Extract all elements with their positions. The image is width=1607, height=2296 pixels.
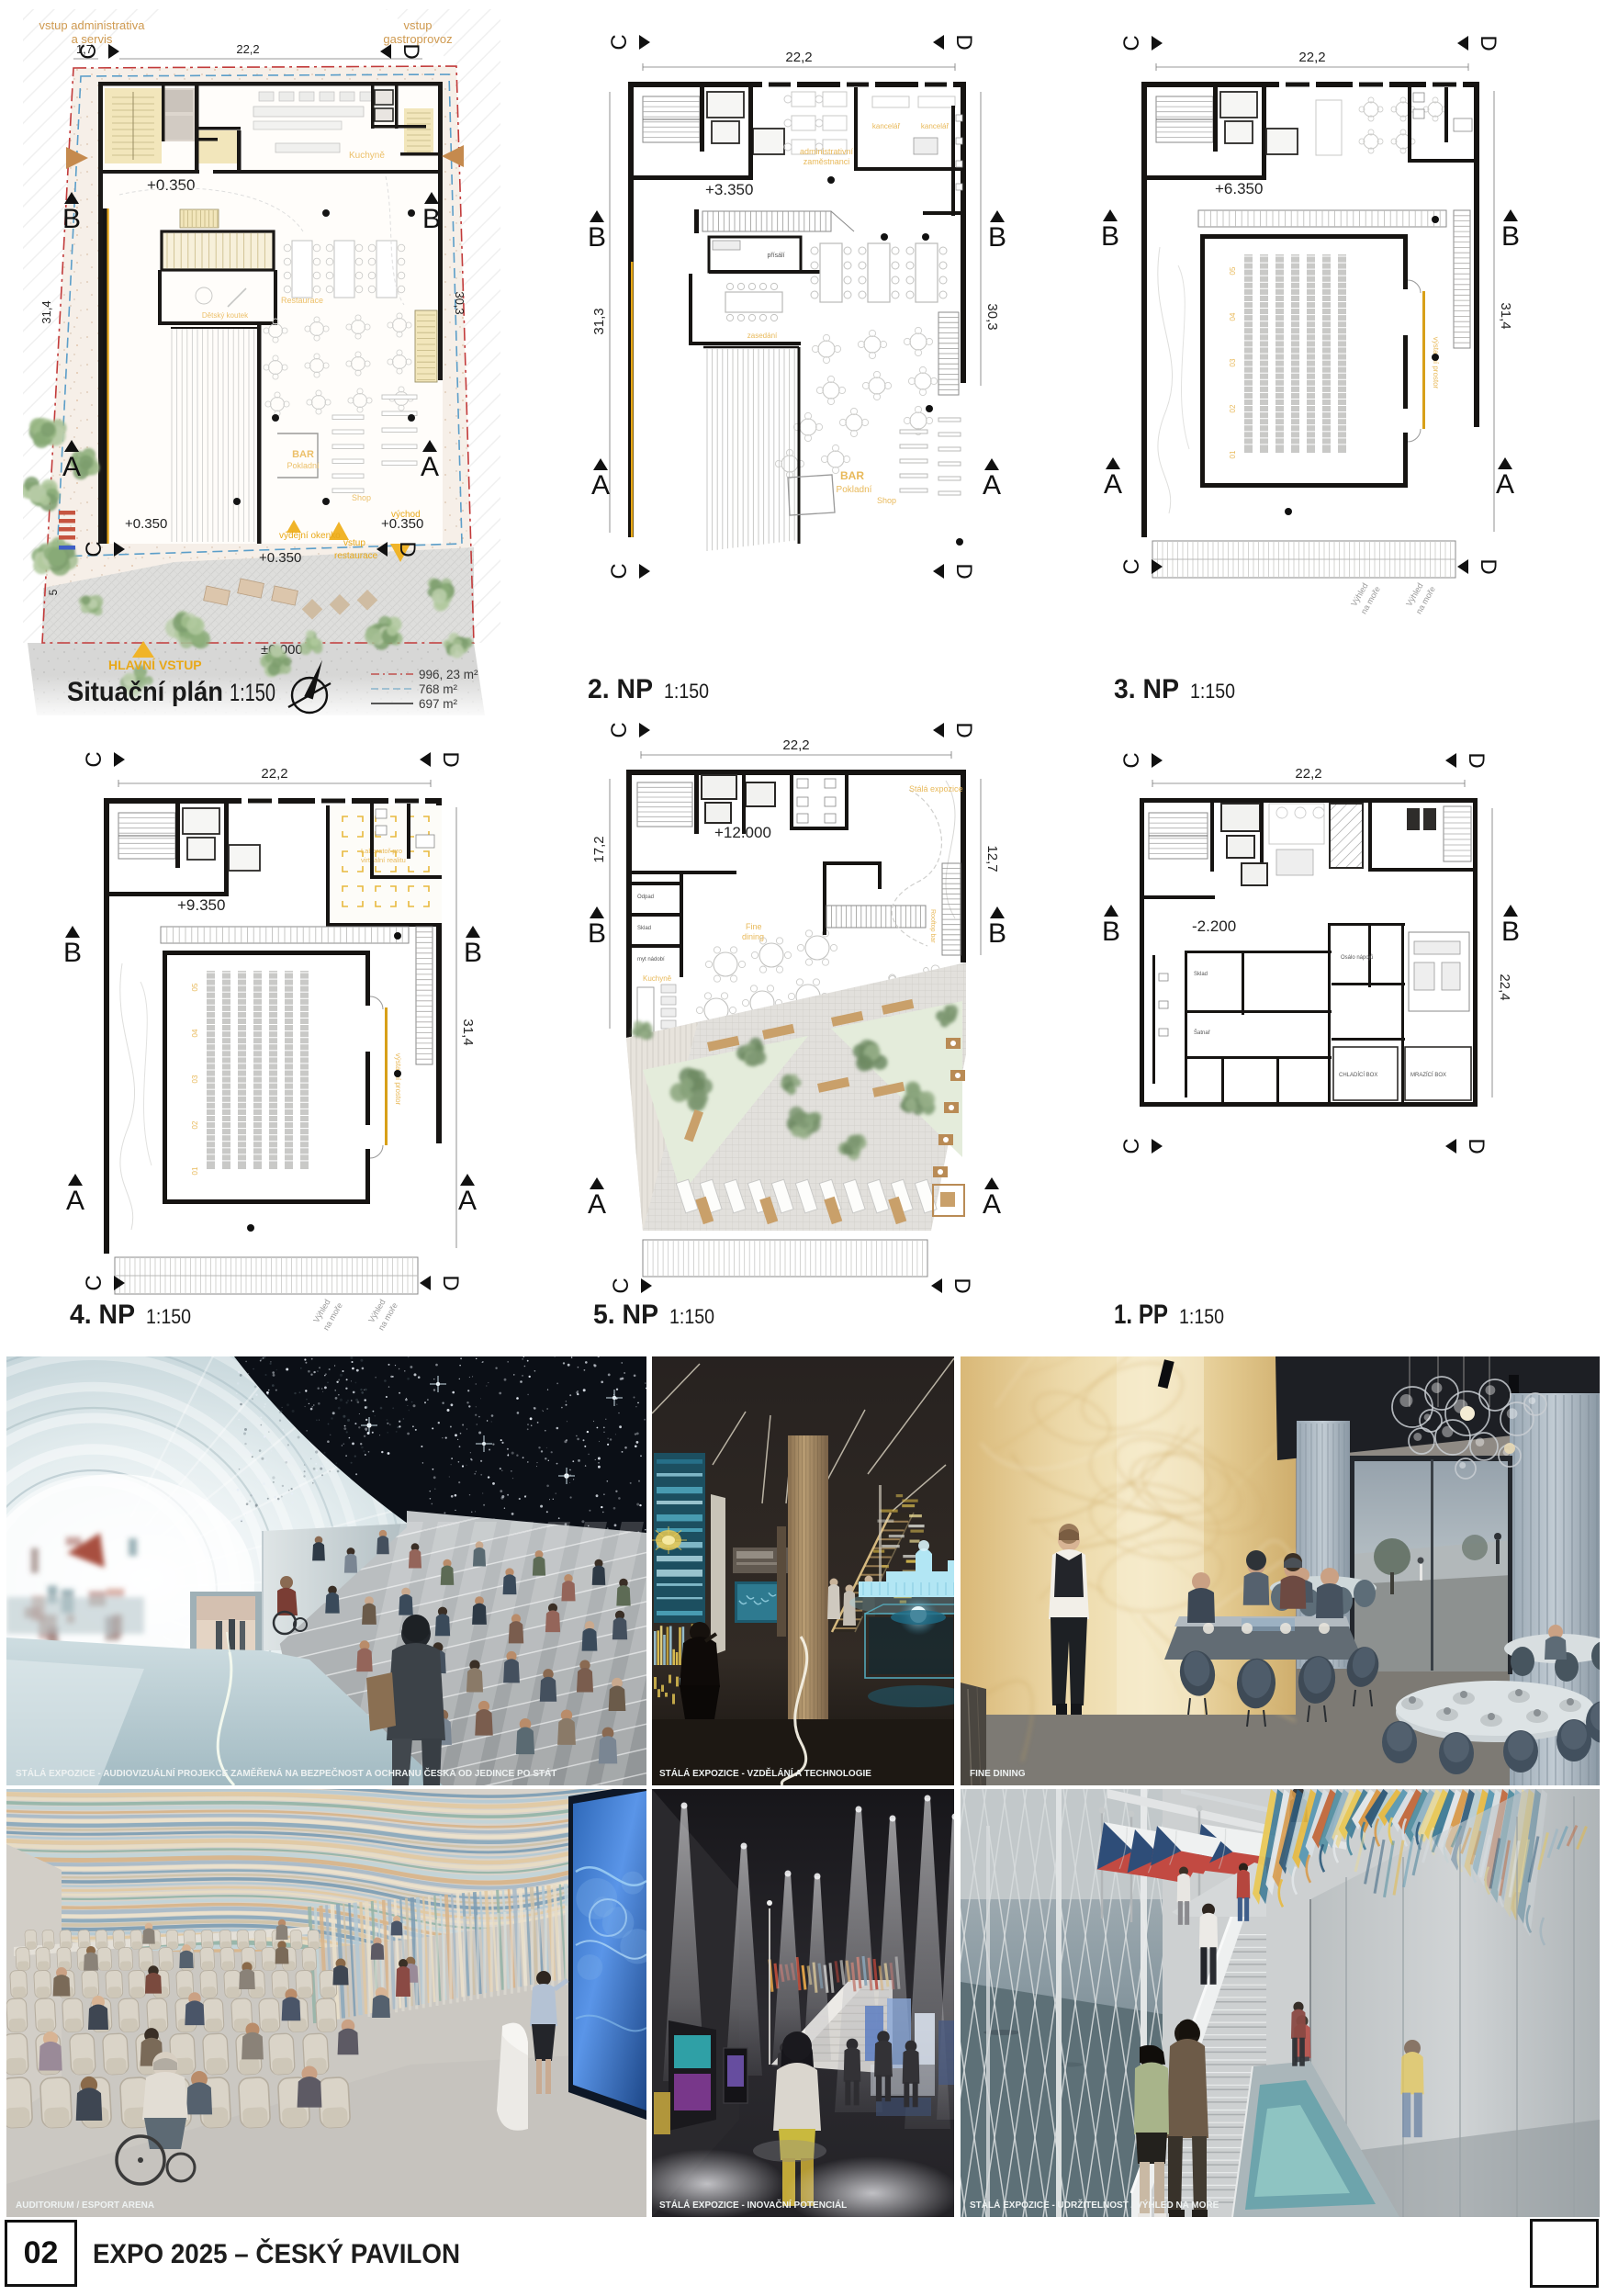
svg-text:C: C xyxy=(82,751,107,767)
svg-text:Dětský koutek: Dětský koutek xyxy=(202,311,249,320)
svg-text:+0.350: +0.350 xyxy=(259,550,301,566)
svg-text:5. NP: 5. NP xyxy=(593,1300,658,1330)
svg-text:B: B xyxy=(1501,221,1520,252)
svg-text:Stálá expozice: Stálá expozice xyxy=(909,784,963,793)
svg-text:B: B xyxy=(1101,221,1119,252)
svg-text:+6.350: +6.350 xyxy=(1215,180,1263,197)
svg-text:CHLADÍCÍ BOX: CHLADÍCÍ BOX xyxy=(1339,1072,1377,1078)
svg-text:+0.350: +0.350 xyxy=(125,516,167,532)
svg-text:B: B xyxy=(588,918,606,949)
svg-text:A: A xyxy=(588,1189,606,1220)
svg-text:dining: dining xyxy=(742,932,764,941)
svg-text:Sklad: Sklad xyxy=(637,926,651,931)
svg-text:B: B xyxy=(988,222,1006,253)
svg-text:2. NP: 2. NP xyxy=(588,674,653,704)
svg-text:B: B xyxy=(588,222,606,253)
svg-text:Laboratoř pro: Laboratoř pro xyxy=(361,847,402,855)
svg-text:myt nádobí: myt nádobí xyxy=(637,957,665,962)
svg-text:východ: východ xyxy=(391,510,421,520)
svg-text:kancelář: kancelář xyxy=(921,122,950,130)
svg-text:Sklad: Sklad xyxy=(1194,972,1208,977)
svg-text:1:150: 1:150 xyxy=(664,680,709,703)
svg-text:12,7: 12,7 xyxy=(984,845,1000,872)
svg-text:22,2: 22,2 xyxy=(1298,50,1325,65)
svg-text:+9.350: +9.350 xyxy=(177,896,225,914)
svg-text:-2.200: -2.200 xyxy=(1192,917,1236,935)
svg-text:A: A xyxy=(1104,469,1122,500)
svg-text:zasedání: zasedání xyxy=(747,332,778,340)
svg-text:996, 23 m²: 996, 23 m² xyxy=(419,668,478,681)
svg-text:zaměstnanci: zaměstnanci xyxy=(803,157,850,166)
svg-text:01: 01 xyxy=(191,1166,199,1175)
svg-text:D: D xyxy=(1476,558,1500,574)
svg-text:D: D xyxy=(395,541,420,557)
svg-text:22,2: 22,2 xyxy=(785,50,812,65)
svg-text:Šatnař: Šatnař xyxy=(1194,1030,1211,1036)
svg-text:04: 04 xyxy=(1229,312,1237,321)
svg-text:BAR: BAR xyxy=(840,469,864,482)
svg-text:31,4: 31,4 xyxy=(1498,302,1513,329)
svg-text:1:150: 1:150 xyxy=(1190,680,1235,703)
svg-text:30,3: 30,3 xyxy=(453,291,466,314)
svg-text:1. PP: 1. PP xyxy=(1114,1300,1168,1330)
svg-text:31,4: 31,4 xyxy=(460,1019,476,1045)
svg-text:FINE DINING: FINE DINING xyxy=(970,1769,1026,1779)
svg-text:STÁLÁ EXPOZICE - VZDĚLÁNÍ A T: STÁLÁ EXPOZICE - VZDĚLÁNÍ A TECHNOLOGIE xyxy=(659,1767,871,1779)
svg-text:01: 01 xyxy=(1229,450,1237,458)
svg-text:Osálo nápojů: Osálo nápojů xyxy=(1341,954,1373,961)
svg-text:05: 05 xyxy=(1229,266,1237,275)
svg-text:STÁLÁ EXPOZICE - AUDIOVIZUÁLN: STÁLÁ EXPOZICE - AUDIOVIZUÁLNÍ PROJEKCE … xyxy=(16,1767,556,1779)
svg-text:4. NP: 4. NP xyxy=(70,1300,135,1330)
svg-text:Rooftop bar: Rooftop bar xyxy=(929,909,936,943)
svg-text:D: D xyxy=(1464,1138,1489,1154)
svg-text:Kuchyně: Kuchyně xyxy=(349,151,385,161)
svg-text:vstup: vstup xyxy=(403,18,432,32)
svg-text:03: 03 xyxy=(1229,358,1237,366)
svg-text:+12.000: +12.000 xyxy=(714,824,771,841)
svg-text:C: C xyxy=(607,563,632,579)
svg-text:C: C xyxy=(1119,558,1144,574)
svg-text:C: C xyxy=(1119,1138,1144,1154)
svg-text:5: 5 xyxy=(47,589,60,595)
svg-text:výstavní prostor: výstavní prostor xyxy=(1432,337,1440,389)
svg-text:vstup administrativa: vstup administrativa xyxy=(39,18,146,32)
svg-text:B: B xyxy=(464,938,482,968)
svg-text:05: 05 xyxy=(191,983,199,991)
svg-text:EXPO 2025 – ČESKÝ PAVILON: EXPO 2025 – ČESKÝ PAVILON xyxy=(93,2238,460,2269)
svg-text:A: A xyxy=(1496,469,1514,500)
svg-text:768 m²: 768 m² xyxy=(419,682,458,696)
svg-text:B: B xyxy=(63,938,82,968)
svg-text:04: 04 xyxy=(191,1029,199,1037)
svg-text:Situační plán: Situační plán xyxy=(67,677,223,707)
svg-text:02: 02 xyxy=(191,1120,199,1129)
svg-text:A: A xyxy=(458,1186,477,1216)
svg-text:22,2: 22,2 xyxy=(236,42,259,56)
svg-text:restaurace: restaurace xyxy=(334,551,378,561)
svg-text:B: B xyxy=(1102,917,1120,947)
svg-text:Pokladní: Pokladní xyxy=(837,485,872,495)
svg-text:Kuchyně: Kuchyně xyxy=(643,974,672,983)
svg-text:B: B xyxy=(1501,917,1520,947)
svg-text:HLAVNÍ VSTUP: HLAVNÍ VSTUP xyxy=(108,658,202,672)
svg-text:STÁLÁ EXPOZICE - UDRŽITELNOST: STÁLÁ EXPOZICE - UDRŽITELNOST / VÝHLED N… xyxy=(970,2199,1219,2211)
svg-text:C: C xyxy=(609,1277,634,1293)
svg-text:31,4: 31,4 xyxy=(39,300,53,323)
svg-text:administrativní: administrativní xyxy=(800,147,854,156)
svg-text:D: D xyxy=(438,751,463,767)
svg-text:B: B xyxy=(62,204,81,234)
svg-text:A: A xyxy=(421,452,439,482)
svg-text:C: C xyxy=(607,722,632,737)
svg-text:A: A xyxy=(983,470,1001,501)
svg-text:22,2: 22,2 xyxy=(261,766,287,782)
svg-text:31,3: 31,3 xyxy=(591,308,607,334)
svg-text:+0.350: +0.350 xyxy=(147,176,195,194)
svg-text:22,2: 22,2 xyxy=(1295,766,1321,782)
svg-text:D: D xyxy=(951,563,976,579)
svg-text:D: D xyxy=(438,1275,463,1290)
svg-text:výdejní okenko: výdejní okenko xyxy=(279,531,341,541)
svg-text:AUDITORIUM / ESPORT ARENA: AUDITORIUM / ESPORT ARENA xyxy=(16,2200,154,2211)
svg-text:A: A xyxy=(66,1186,84,1216)
svg-text:C: C xyxy=(607,34,632,50)
svg-text:STÁLÁ EXPOZICE - INOVAČNÍ POT: STÁLÁ EXPOZICE - INOVAČNÍ POTENCIÁL xyxy=(659,2199,847,2211)
svg-text:+3.350: +3.350 xyxy=(705,181,753,198)
svg-text:3. NP: 3. NP xyxy=(1114,674,1179,704)
svg-text:D: D xyxy=(1464,752,1489,768)
svg-text:1:150: 1:150 xyxy=(669,1305,714,1328)
svg-text:Fine: Fine xyxy=(746,922,762,931)
svg-text:1:150: 1:150 xyxy=(1179,1305,1224,1328)
svg-text:Shop: Shop xyxy=(877,496,896,505)
svg-text:B: B xyxy=(988,918,1006,949)
svg-text:22,2: 22,2 xyxy=(782,737,809,753)
svg-text:C: C xyxy=(82,1275,107,1290)
svg-text:A: A xyxy=(983,1189,1001,1220)
svg-text:22,4: 22,4 xyxy=(1497,974,1512,1000)
svg-text:MRAZÍCÍ BOX: MRAZÍCÍ BOX xyxy=(1410,1072,1446,1078)
svg-text:Pokladní: Pokladní xyxy=(287,461,320,470)
svg-text:Shop: Shop xyxy=(352,493,371,502)
svg-text:17,2: 17,2 xyxy=(591,836,607,862)
svg-text:BAR: BAR xyxy=(292,449,314,460)
svg-text:1:150: 1:150 xyxy=(146,1305,191,1328)
svg-text:B: B xyxy=(422,204,441,234)
svg-text:Restaurace: Restaurace xyxy=(281,296,323,305)
svg-text:D: D xyxy=(950,1277,974,1293)
svg-text:D: D xyxy=(951,34,976,50)
svg-text:přísálí: přísálí xyxy=(767,253,784,259)
svg-text:A: A xyxy=(591,470,610,501)
svg-text:D: D xyxy=(399,43,423,59)
svg-text:C: C xyxy=(76,43,101,59)
svg-text:30,3: 30,3 xyxy=(984,303,1000,330)
svg-text:C: C xyxy=(1119,35,1144,51)
svg-text:kancelář: kancelář xyxy=(872,122,901,130)
svg-text:vstup: vstup xyxy=(343,538,365,548)
svg-text:1:150: 1:150 xyxy=(230,679,275,706)
svg-text:D: D xyxy=(1476,35,1500,51)
svg-text:A: A xyxy=(62,452,81,482)
svg-text:Odpad: Odpad xyxy=(637,895,654,900)
svg-text:02: 02 xyxy=(1229,404,1237,412)
svg-text:C: C xyxy=(82,541,107,557)
svg-text:03: 03 xyxy=(191,1075,199,1083)
svg-text:D: D xyxy=(951,722,976,737)
svg-text:výstavní prostor: výstavní prostor xyxy=(394,1053,402,1106)
svg-text:C: C xyxy=(1119,752,1144,768)
svg-text:697 m²: 697 m² xyxy=(419,697,458,711)
svg-text:virtuální realitu: virtuální realitu xyxy=(361,856,406,864)
